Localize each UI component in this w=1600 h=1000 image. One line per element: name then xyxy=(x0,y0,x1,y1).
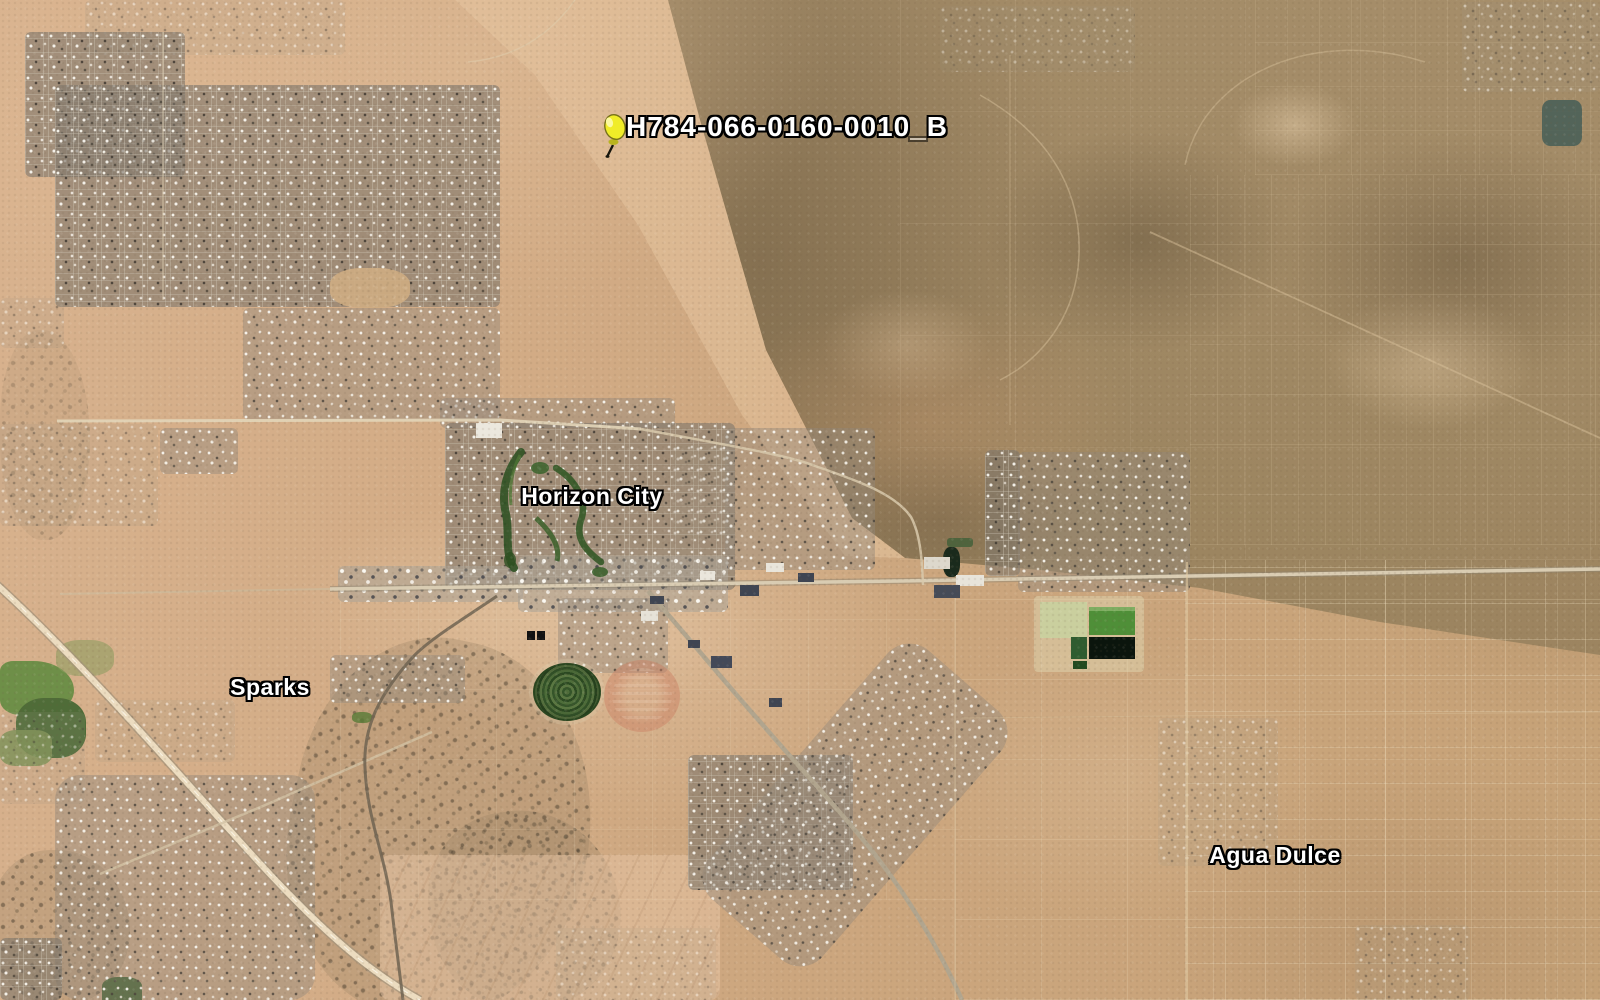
pin-label: H784-066-0160-0010_B xyxy=(626,113,948,141)
pushpin-icon xyxy=(602,112,628,158)
satellite-map-viewport[interactable]: H784-066-0160-0010_B Horizon CitySparksA… xyxy=(0,0,1600,1000)
noise-overlay xyxy=(0,0,1600,1000)
